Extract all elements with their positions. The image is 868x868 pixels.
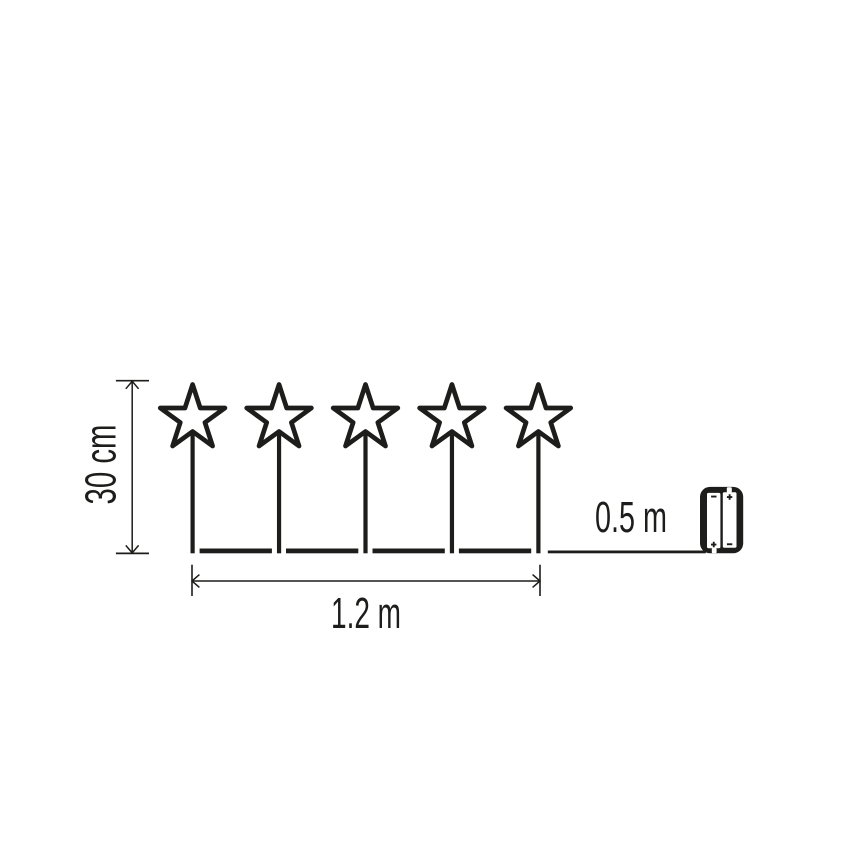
svg-text:0.5 m: 0.5 m — [595, 494, 667, 542]
svg-text:30 cm: 30 cm — [78, 425, 126, 505]
svg-text:1.2 m: 1.2 m — [331, 590, 401, 638]
